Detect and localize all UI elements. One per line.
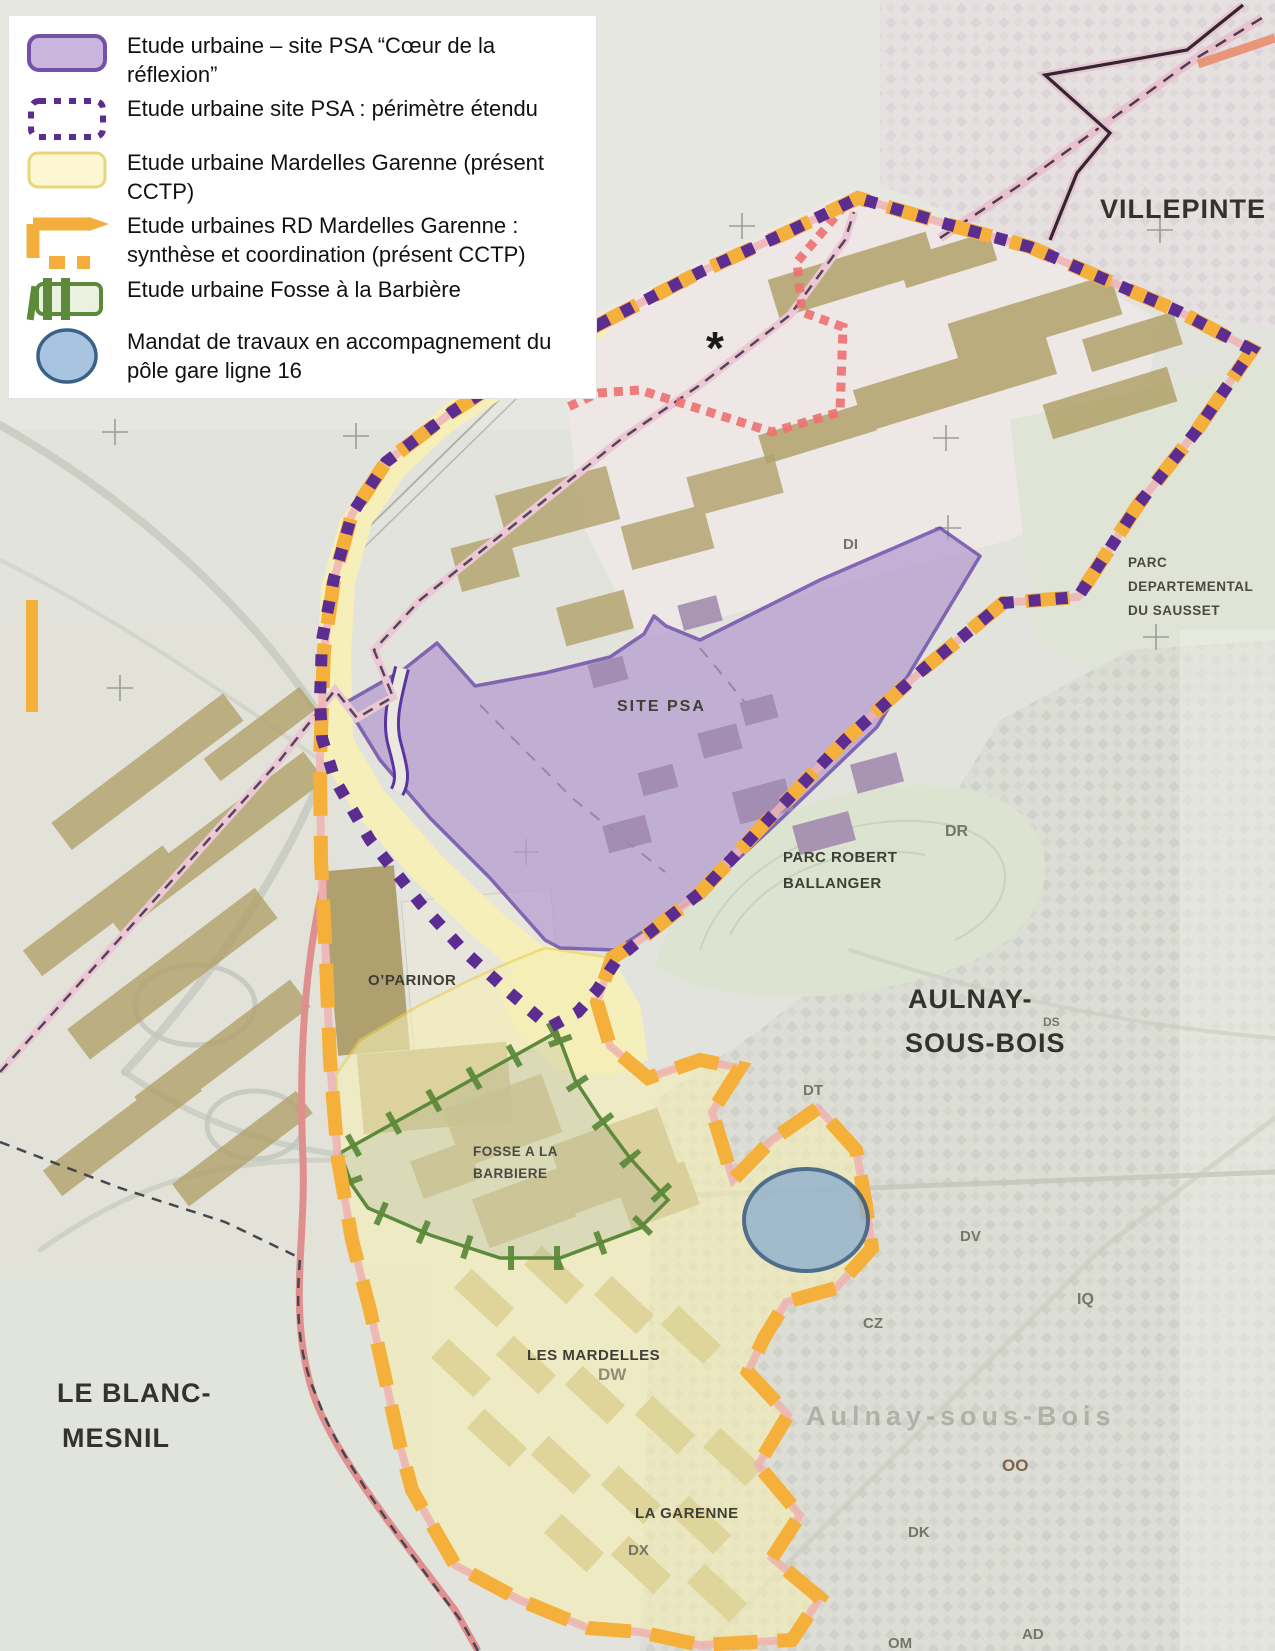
legend-label: Etude urbaine Fosse à la Barbière: [127, 276, 461, 305]
purple-filled-rect-icon: [21, 32, 113, 74]
road-code-dx: DX: [628, 1542, 649, 1559]
legend-item-fosse-barbiere: Etude urbaine Fosse à la Barbière: [21, 276, 582, 322]
blue-ellipse-icon: [21, 328, 113, 384]
label-fosse-2: BARBIERE: [473, 1166, 548, 1181]
label-mardelles: LES MARDELLES: [527, 1347, 660, 1364]
road-code-ad: AD: [1022, 1626, 1044, 1643]
orange-thick-dashes-icon: [21, 212, 113, 270]
road-code-ds: DS: [1043, 1015, 1060, 1029]
road-code-dt: DT: [803, 1082, 823, 1099]
label-sausset-1: PARC: [1128, 555, 1167, 570]
legend-label: Etude urbaine – site PSA “Cœur de la réf…: [127, 32, 582, 89]
road-code-dr: DR: [945, 823, 969, 840]
label-watermark-aulnay: Aulnay-sous-Bois: [806, 1401, 1116, 1431]
label-blanc-mesnil-1: LE BLANC-: [57, 1378, 211, 1408]
legend-label: Mandat de travaux en accompagnement du p…: [127, 328, 582, 385]
label-villepinte: VILLEPINTE: [1100, 194, 1266, 224]
pale-yellow-rect-icon: [21, 149, 113, 191]
road-code-dv: DV: [960, 1228, 981, 1245]
legend-label: Etude urbaines RD Mardelles Garenne : sy…: [127, 212, 582, 269]
legend-item-mardelles-garenne: Etude urbaine Mardelles Garenne (présent…: [21, 149, 582, 206]
road-code-dw: DW: [598, 1365, 627, 1384]
legend-label: Etude urbaine site PSA : périmètre étend…: [127, 95, 538, 124]
label-garenne: LA GARENNE: [635, 1505, 739, 1522]
legend-panel: Etude urbaine – site PSA “Cœur de la réf…: [8, 15, 597, 399]
road-code-oo: OO: [1002, 1456, 1028, 1475]
legend-item-rd-mardelles-garenne: Etude urbaines RD Mardelles Garenne : sy…: [21, 212, 582, 270]
legend-label: Etude urbaine Mardelles Garenne (présent…: [127, 149, 582, 206]
road-code-om: OM: [888, 1635, 912, 1651]
label-ballanger-2: BALLANGER: [783, 875, 882, 892]
road-code-iq: IQ: [1077, 1291, 1094, 1308]
legend-item-psa-extended: Etude urbaine site PSA : périmètre étend…: [21, 95, 582, 143]
road-code-cz: CZ: [863, 1315, 883, 1332]
label-aulnay-1: AULNAY-: [908, 984, 1033, 1014]
label-oparinor: O’PARINOR: [368, 972, 456, 989]
urban-study-map: VILLEPINTE PARC DEPARTEMENTAL DU SAUSSET…: [0, 0, 1275, 1651]
road-code-dk: DK: [908, 1524, 930, 1541]
pole-gare-ligne16-ellipse: [744, 1169, 868, 1271]
label-sausset-2: DEPARTEMENTAL: [1128, 579, 1253, 594]
label-fosse-1: FOSSE A LA: [473, 1144, 558, 1159]
label-site-psa: SITE PSA: [617, 698, 706, 715]
label-ballanger-1: PARC ROBERT: [783, 849, 897, 866]
label-sausset-3: DU SAUSSET: [1128, 603, 1220, 618]
green-ticked-rect-icon: [21, 276, 113, 322]
legend-item-pole-gare: Mandat de travaux en accompagnement du p…: [21, 328, 582, 385]
label-aulnay-2: SOUS-BOIS: [905, 1028, 1066, 1058]
legend-item-psa-core: Etude urbaine – site PSA “Cœur de la réf…: [21, 32, 582, 89]
road-code-di: DI: [843, 536, 858, 553]
asterisk-symbol: *: [706, 322, 724, 374]
purple-dotted-outline-icon: [21, 95, 113, 143]
label-blanc-mesnil-2: MESNIL: [62, 1423, 170, 1453]
